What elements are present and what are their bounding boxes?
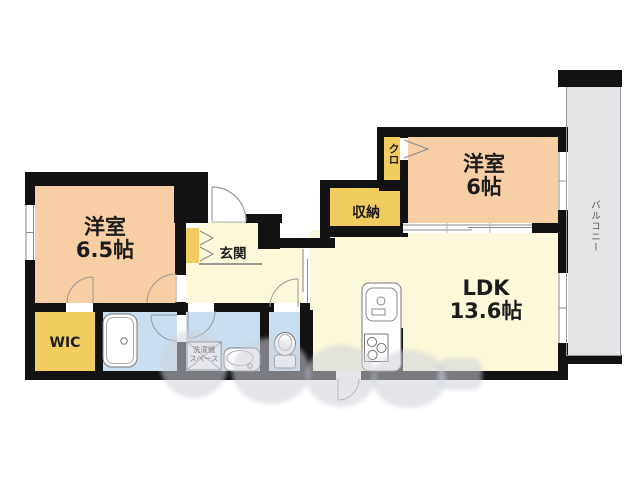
floorplan-canvas: 洋室 6.5帖 洋室 6帖 LDK 13.6帖 WIC 玄関 収納 クロ バルコ… [0, 0, 640, 480]
wall [377, 137, 384, 184]
closet-door-opening [400, 138, 408, 160]
window-west2 [558, 152, 568, 210]
wall [246, 214, 282, 223]
balcony-label: バルコニー [587, 200, 601, 253]
wall [379, 183, 403, 191]
wic-label: WIC [36, 335, 94, 351]
wall [558, 127, 568, 152]
wall [377, 127, 568, 137]
watermark [438, 358, 482, 390]
entrance-label: 玄関 [203, 242, 263, 262]
wall [320, 180, 330, 248]
front-door-swing [212, 187, 246, 222]
west-room-2-label: 洋室 6帖 [434, 153, 534, 199]
window-west1 [25, 205, 35, 260]
shoe-cabinet [186, 228, 199, 263]
room-size: 6帖 [434, 176, 534, 199]
sliding-door-band [403, 223, 532, 233]
wall [532, 223, 558, 233]
window-ldk [558, 273, 568, 343]
west-room-1-label: 洋室 6.5帖 [55, 216, 155, 262]
room-name: 洋室 [463, 152, 505, 176]
watermark [372, 350, 446, 408]
watermark [232, 338, 310, 404]
wall [95, 310, 103, 371]
washroom-door-opening [188, 303, 214, 312]
storage-label: 収納 [330, 202, 402, 222]
wall [175, 186, 186, 275]
closet-label: クロ [385, 143, 401, 165]
toilet-door-opening [274, 303, 300, 312]
watermark [160, 330, 228, 398]
wall [25, 172, 35, 380]
wall [558, 210, 568, 273]
ldk-label: LDK 13.6帖 [436, 277, 536, 323]
balcony-bottom-wall [558, 355, 622, 364]
balcony-top-wall [558, 70, 622, 87]
wall [320, 226, 408, 237]
room-size: 13.6帖 [436, 300, 536, 323]
room-name: 洋室 [84, 215, 126, 239]
room-name: LDK [462, 276, 509, 300]
wic-door-opening [66, 303, 93, 312]
watermark [306, 345, 376, 407]
room-size: 6.5帖 [55, 239, 155, 262]
